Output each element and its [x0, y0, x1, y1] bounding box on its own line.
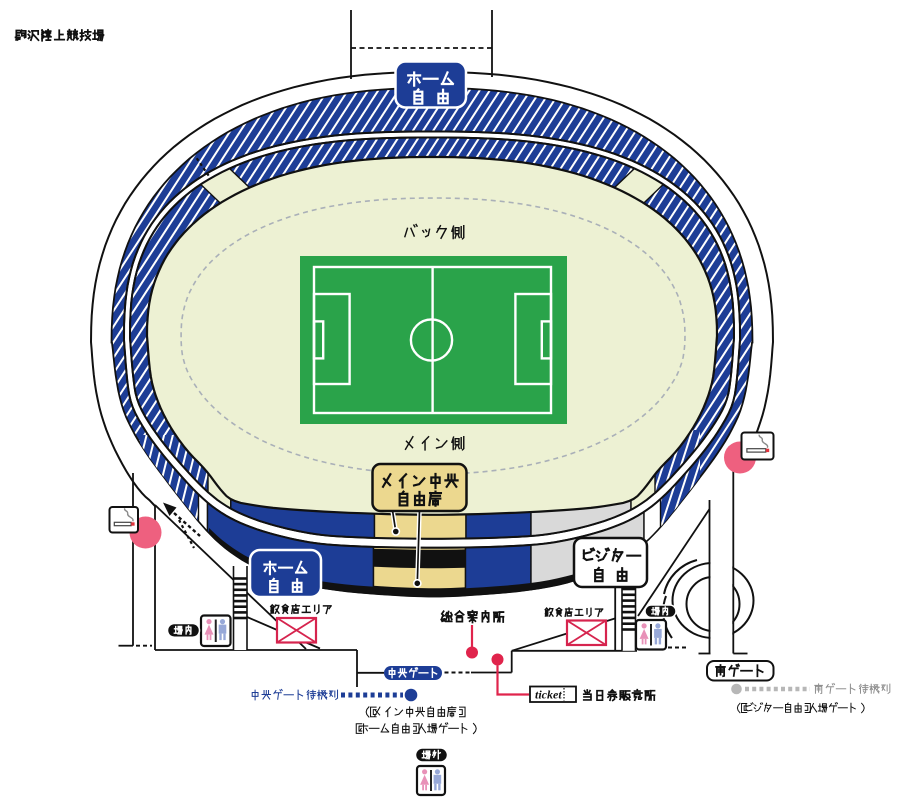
svg-text:ticket: ticket — [535, 688, 562, 702]
